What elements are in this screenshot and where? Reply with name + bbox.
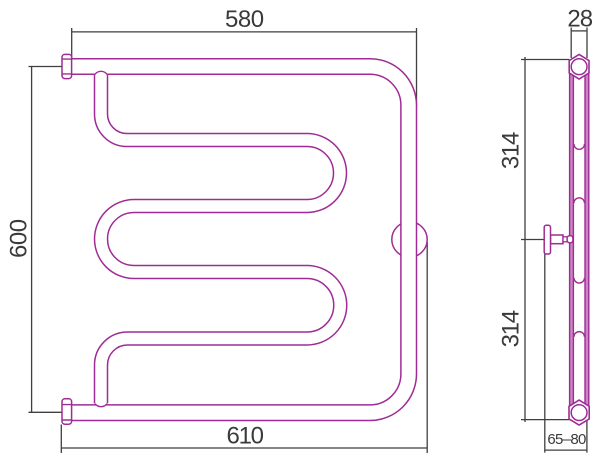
svg-text:314: 314 — [497, 310, 524, 347]
svg-text:28: 28 — [567, 5, 592, 32]
svg-text:65–80: 65–80 — [547, 431, 586, 448]
svg-text:580: 580 — [225, 6, 264, 33]
svg-text:600: 600 — [5, 219, 32, 258]
svg-text:610: 610 — [227, 422, 264, 449]
svg-text:314: 314 — [497, 132, 524, 169]
